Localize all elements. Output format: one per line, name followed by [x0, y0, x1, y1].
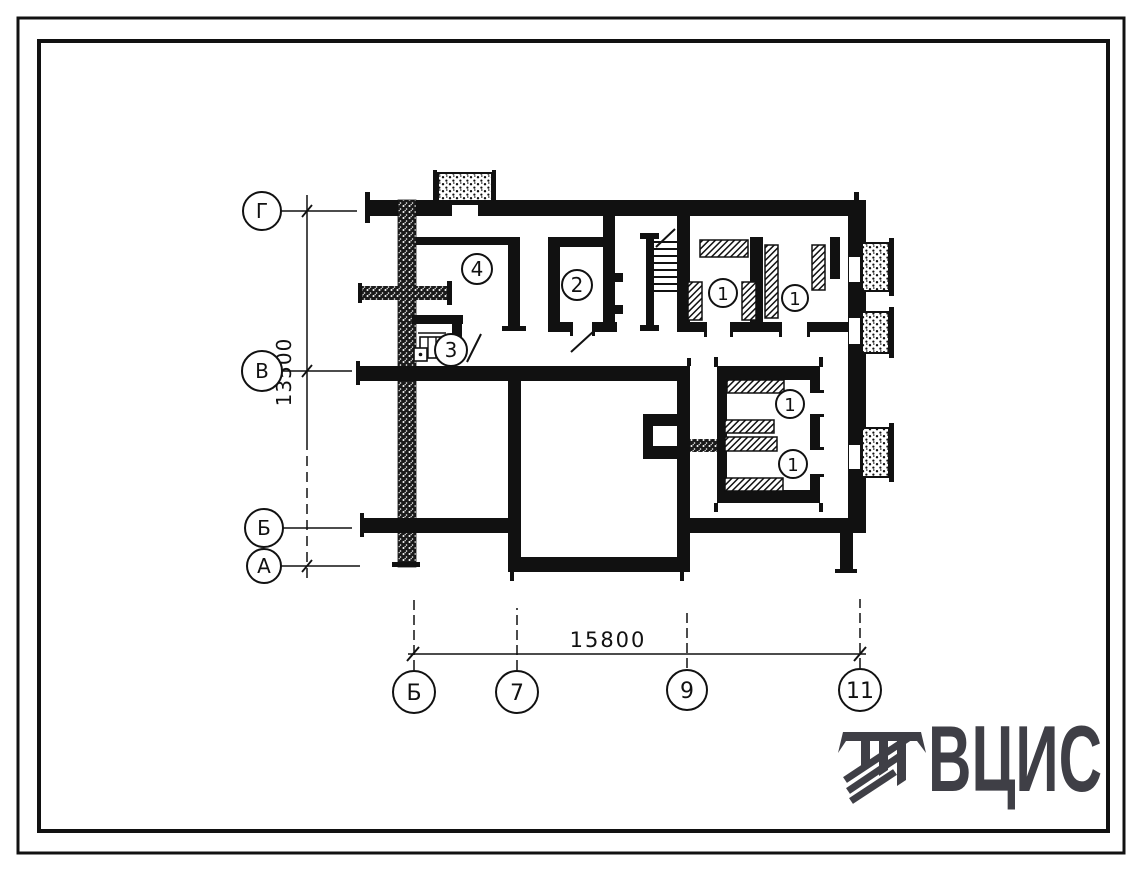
drawing-sheet: 4 2 3 1 1 1 1 13500 Г В Б А	[0, 0, 1139, 869]
axis-label-b: Б	[257, 516, 271, 540]
axis-label-11: 11	[846, 679, 874, 704]
axis-label-v: В	[255, 359, 269, 383]
room-label-1c: 1	[784, 395, 795, 416]
axis-label-9: 9	[680, 679, 694, 704]
room-label-2: 2	[571, 273, 584, 297]
room-label-4: 4	[471, 257, 484, 281]
axis-label-g: Г	[256, 199, 268, 223]
axis-label-7: 7	[510, 681, 524, 706]
room-label-1b: 1	[789, 289, 800, 310]
entrance-porch	[433, 170, 496, 204]
axis-label-a: А	[257, 554, 271, 578]
horizontal-dimension-label: 15800	[570, 628, 647, 652]
room-label-3: 3	[445, 338, 458, 362]
room-label-1d: 1	[787, 455, 798, 476]
logo-text: ВЦИС	[928, 706, 1102, 811]
axis-label-b2: Б	[406, 681, 421, 706]
room-label-1a: 1	[717, 284, 728, 305]
blueprint-canvas: 4 2 3 1 1 1 1 13500 Г В Б А	[0, 0, 1139, 869]
